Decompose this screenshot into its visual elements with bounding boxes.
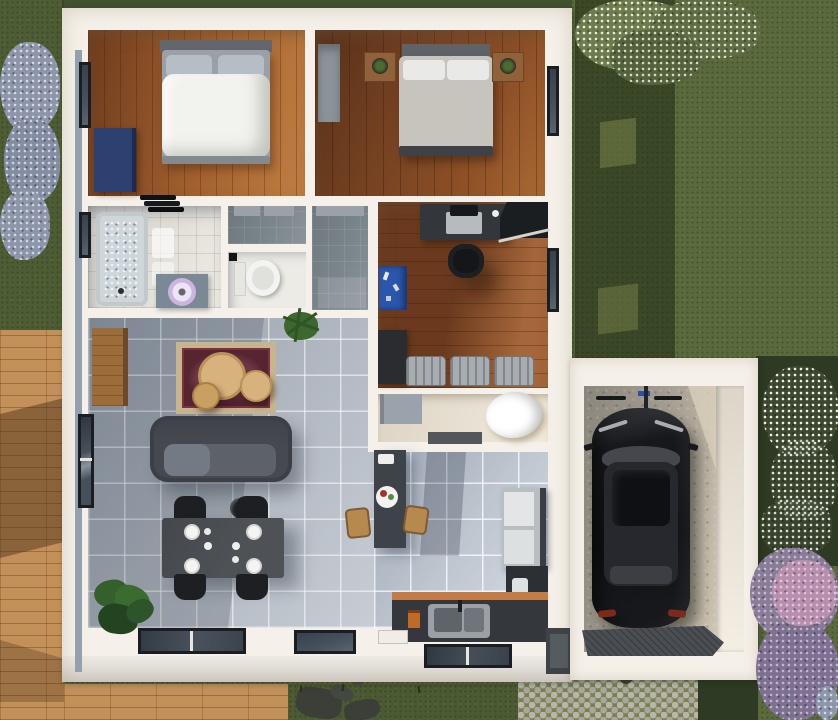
plate xyxy=(184,524,200,540)
nightstand-plant xyxy=(372,58,388,74)
island-plates xyxy=(378,454,394,464)
fruit-green xyxy=(388,494,394,500)
cup xyxy=(204,542,212,550)
sink-basin xyxy=(464,608,484,632)
interior-wall xyxy=(368,202,378,452)
toilet-tank xyxy=(234,262,246,296)
door-hinge xyxy=(229,253,237,261)
counter-backsplash-edge xyxy=(392,592,548,600)
toilet-bowl xyxy=(252,266,274,290)
bed-footband xyxy=(399,146,493,156)
bar-stool xyxy=(344,507,371,539)
closet-shelf xyxy=(316,206,364,216)
duvet xyxy=(162,74,270,158)
upholstered-chair xyxy=(450,356,490,386)
plate xyxy=(246,524,262,540)
dark-grass-corner xyxy=(698,676,758,720)
plate xyxy=(184,558,200,574)
sink-faucet xyxy=(458,600,462,612)
cup xyxy=(232,556,239,563)
blue-bush xyxy=(0,190,50,260)
floor-window-mullion xyxy=(466,647,469,665)
parapet-strip xyxy=(75,50,82,672)
fridge-side-dark xyxy=(540,488,546,568)
fridge-door xyxy=(504,492,534,526)
corridor-light-patch xyxy=(318,278,366,308)
closet-shelf xyxy=(264,206,294,216)
bathtub-water xyxy=(103,220,141,298)
living-window-icon xyxy=(78,414,94,508)
bath-mat xyxy=(152,228,174,258)
floor-window-mullion xyxy=(190,631,193,651)
deck-bottom xyxy=(64,684,288,720)
kitchen-shadow-patch xyxy=(420,452,466,556)
cup xyxy=(204,528,211,535)
bedroom2-window-icon xyxy=(547,66,559,136)
bedroom1-dresser xyxy=(94,128,136,192)
coffee-table xyxy=(192,382,220,410)
vanity-sink-icon xyxy=(168,278,196,306)
towel-bar xyxy=(148,207,184,212)
bathroom-window-icon xyxy=(79,212,91,258)
bedroom1-window-icon xyxy=(79,62,91,128)
counter-item-orange xyxy=(408,610,420,628)
bar-stool xyxy=(402,504,430,535)
deck-shadow xyxy=(0,398,64,558)
nightstand-plant xyxy=(500,58,516,74)
office-chair-icon xyxy=(448,244,484,278)
garage-tool-bar xyxy=(654,396,682,400)
dining-chair xyxy=(236,574,268,600)
utility-table xyxy=(380,394,422,424)
purple-bush-pink xyxy=(772,560,836,626)
bedroom2-runner-rug xyxy=(318,44,340,122)
closet-shelf xyxy=(234,206,260,216)
floor-plan-scene xyxy=(0,0,838,720)
blossom-tree xyxy=(610,30,700,85)
upholstered-chair xyxy=(406,356,446,386)
fruit-red xyxy=(380,490,387,497)
towel-bar xyxy=(140,195,176,200)
dining-chair xyxy=(174,574,206,600)
office-dark-cabinet xyxy=(377,330,407,384)
upholstered-chair xyxy=(494,356,534,386)
living-window-mullion xyxy=(80,458,92,461)
sideboard xyxy=(92,328,128,406)
grass-sprig xyxy=(300,686,302,692)
sofa-seat-sunlit xyxy=(164,444,210,476)
workbench-tool xyxy=(386,296,391,301)
garage-tool-bar xyxy=(596,396,626,400)
car-rear-window xyxy=(610,566,672,584)
floor-window-icon xyxy=(294,630,356,654)
garage-entry-mat xyxy=(582,626,724,656)
dining-table xyxy=(162,518,284,578)
desk-mug xyxy=(492,210,499,217)
fridge-door xyxy=(504,530,534,564)
bed-footband xyxy=(162,156,270,164)
side-passage-step xyxy=(550,634,568,668)
towel-bar xyxy=(144,201,180,206)
lawn-light-patch xyxy=(598,284,638,335)
blue-bush-corner xyxy=(816,686,838,720)
plate xyxy=(246,558,262,574)
fruit-bowl-icon xyxy=(376,486,398,508)
coffee-table xyxy=(240,370,272,402)
utility-mat xyxy=(428,432,482,444)
garage-inner-wall xyxy=(716,386,744,652)
small-white-table xyxy=(378,630,408,644)
office-window-icon xyxy=(547,248,559,312)
lawn-light-patch xyxy=(600,118,636,168)
pillow xyxy=(403,60,445,80)
car-sunroof xyxy=(612,470,670,526)
cup xyxy=(232,542,240,550)
laptop-screen xyxy=(450,205,478,216)
pillow xyxy=(447,60,489,80)
bathtub-drain xyxy=(118,288,124,294)
